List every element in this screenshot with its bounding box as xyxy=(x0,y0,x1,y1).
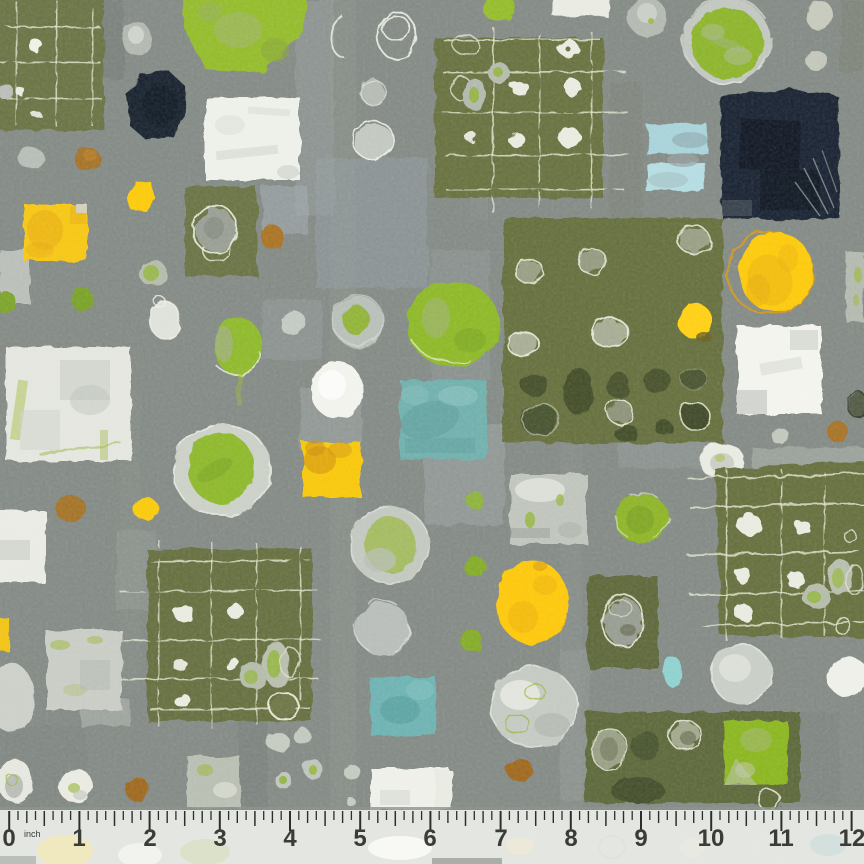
svg-text:5: 5 xyxy=(353,825,366,852)
svg-text:1: 1 xyxy=(72,825,85,852)
svg-text:10: 10 xyxy=(698,825,725,852)
svg-text:0: 0 xyxy=(2,825,15,852)
svg-text:4: 4 xyxy=(283,825,297,852)
svg-text:7: 7 xyxy=(494,825,507,852)
svg-text:11: 11 xyxy=(768,825,793,852)
svg-text:8: 8 xyxy=(564,825,577,852)
svg-text:inch: inch xyxy=(24,829,41,839)
svg-text:9: 9 xyxy=(634,825,647,852)
svg-text:2: 2 xyxy=(143,825,156,852)
svg-text:6: 6 xyxy=(423,825,436,852)
svg-text:3: 3 xyxy=(213,825,226,852)
svg-text:12: 12 xyxy=(839,825,864,852)
